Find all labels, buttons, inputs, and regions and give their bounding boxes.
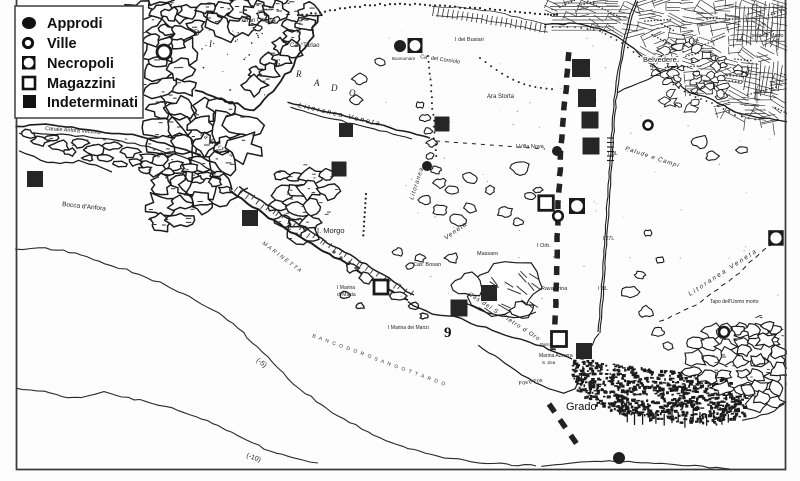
svg-text:R: R [295,69,302,79]
svg-text:Indeterminati: Indeterminati [47,95,138,111]
svg-text:I Marina: I Marina [337,285,355,291]
svg-text:Approdi: Approdi [47,16,103,32]
svg-text:S. Zea: S. Zea [542,360,556,365]
svg-text:A: A [313,78,320,88]
svg-text:Ara Storta: Ara Storta [487,94,515,100]
svg-text:Marina Azzurra: Marina Azzurra [539,353,573,359]
svg-text:I dei Busiari: I dei Busiari [455,37,484,43]
svg-text:I Villa Nova: I Villa Nova [516,144,545,150]
svg-text:Buonumare: Buonumare [392,56,416,61]
svg-text:di Macia: di Macia [337,292,356,298]
svg-text:Cas°Tarlao: Cas°Tarlao [290,43,320,49]
svg-text:Massaro: Massaro [477,251,498,257]
svg-text:I 2tL: I 2tL [598,286,608,292]
svg-text:'Cas' Bosan: 'Cas' Bosan [412,262,441,268]
svg-text:Belvedere: Belvedere [643,55,677,64]
svg-text:I Marina dei Manzi: I Marina dei Manzi [388,325,429,331]
svg-text:Isola Di Mario: Isola Di Mario [750,33,784,39]
svg-text:I Orb.: I Orb. [537,243,551,249]
svg-text:Gran Chiusa: Gran Chiusa [242,18,276,24]
svg-text:O: O [349,88,356,98]
svg-text:Magazzini: Magazzini [47,76,115,92]
svg-text:D: D [330,83,338,93]
svg-text:I 27L: I 27L [603,236,614,242]
svg-text:Necropoli: Necropoli [47,56,114,72]
svg-text:I 3tL: I 3tL [608,151,618,157]
svg-text:I. Morgo: I. Morgo [317,226,345,235]
svg-text:Ville: Ville [47,36,77,52]
svg-text:G: G [274,58,281,68]
svg-text:9: 9 [444,325,452,341]
svg-text:Tapo dell'Uomo morto: Tapo dell'Uomo morto [710,299,759,305]
svg-text:D: D [192,28,200,38]
svg-text:Grado: Grado [566,401,597,413]
